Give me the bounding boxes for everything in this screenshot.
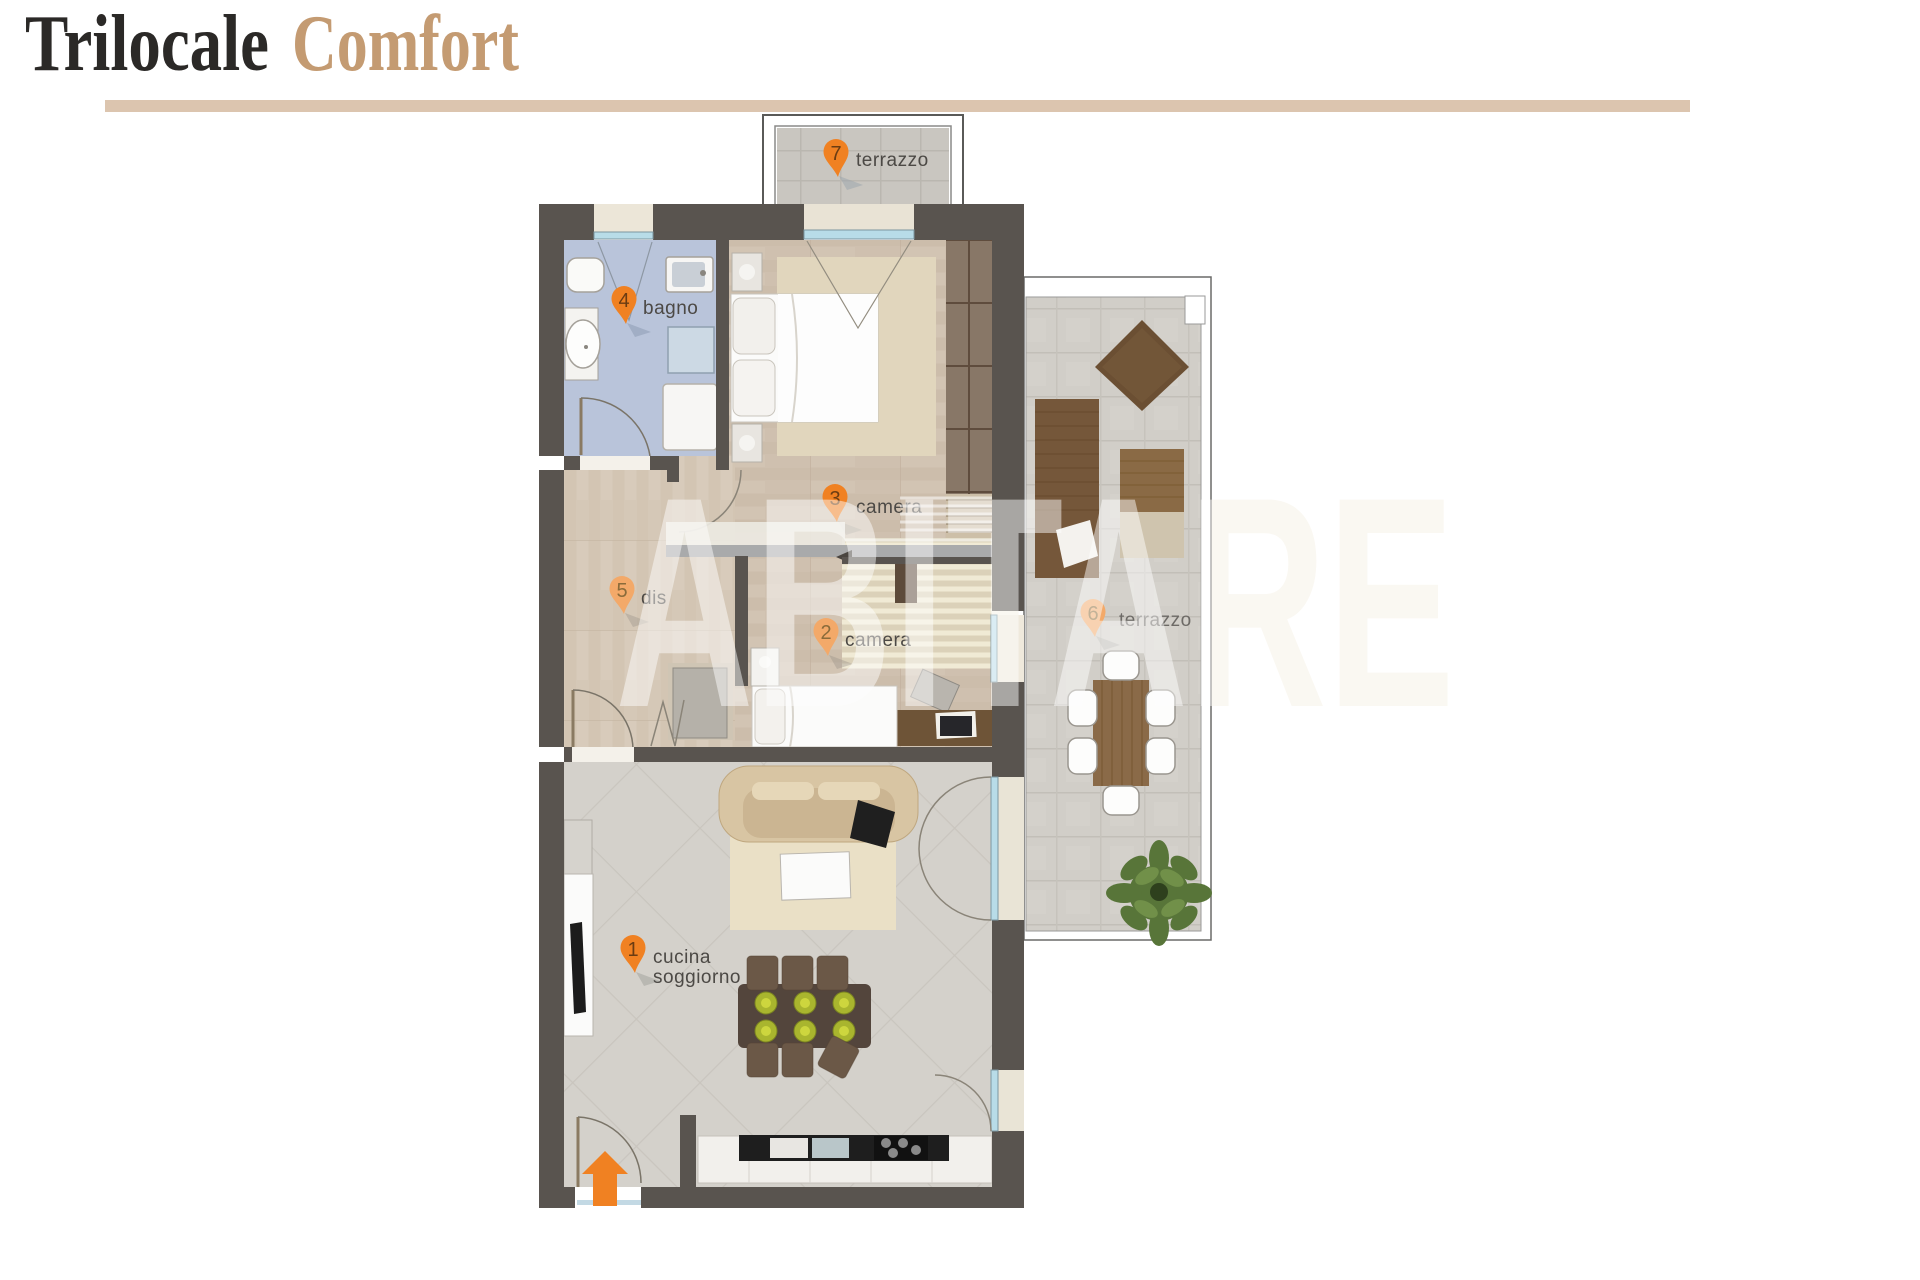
svg-text:7: 7 [830,143,841,165]
svg-text:cucina: cucina [653,947,711,968]
svg-text:Trilocale: Trilocale [25,0,269,88]
svg-text:terrazzo: terrazzo [856,150,929,171]
svg-text:ABITARE: ABITARE [615,434,1455,770]
svg-text:1: 1 [627,939,638,961]
svg-text:bagno: bagno [643,298,698,319]
svg-text:Comfort: Comfort [292,0,519,88]
svg-text:soggiorno: soggiorno [653,967,741,988]
svg-text:4: 4 [618,290,629,312]
